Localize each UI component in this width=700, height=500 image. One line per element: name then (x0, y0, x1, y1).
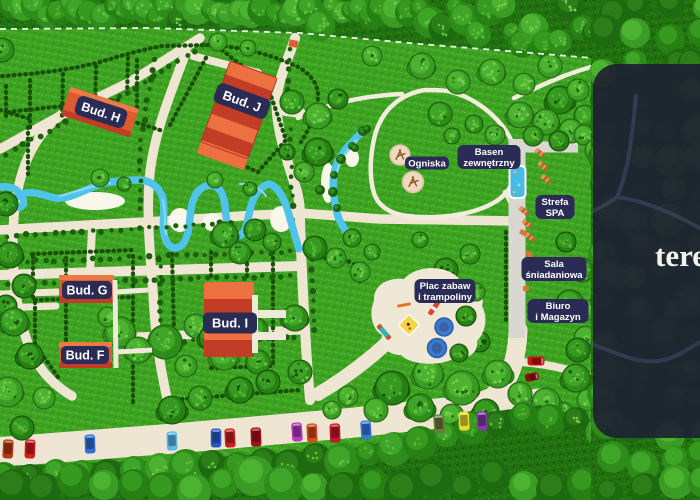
svg-text:i trampoliny: i trampoliny (418, 292, 473, 303)
svg-text:Biuro: Biuro (546, 301, 571, 312)
svg-text:Basen: Basen (475, 147, 504, 158)
svg-text:zewnętrzny: zewnętrzny (463, 158, 515, 169)
svg-text:Bud. F: Bud. F (66, 349, 105, 363)
svg-text:Strefa: Strefa (542, 197, 570, 208)
svg-text:SPA: SPA (546, 208, 565, 219)
svg-text:teren: teren (655, 238, 700, 273)
svg-text:Bud. G: Bud. G (67, 284, 108, 298)
svg-text:i Magazyn: i Magazyn (535, 312, 581, 323)
svg-text:Sala: Sala (544, 259, 564, 270)
svg-text:śniadaniowa: śniadaniowa (525, 270, 583, 281)
svg-text:Ogniska: Ogniska (408, 158, 446, 169)
svg-text:Plac zabaw: Plac zabaw (420, 281, 471, 292)
svg-text:Bud. I: Bud. I (212, 316, 248, 331)
